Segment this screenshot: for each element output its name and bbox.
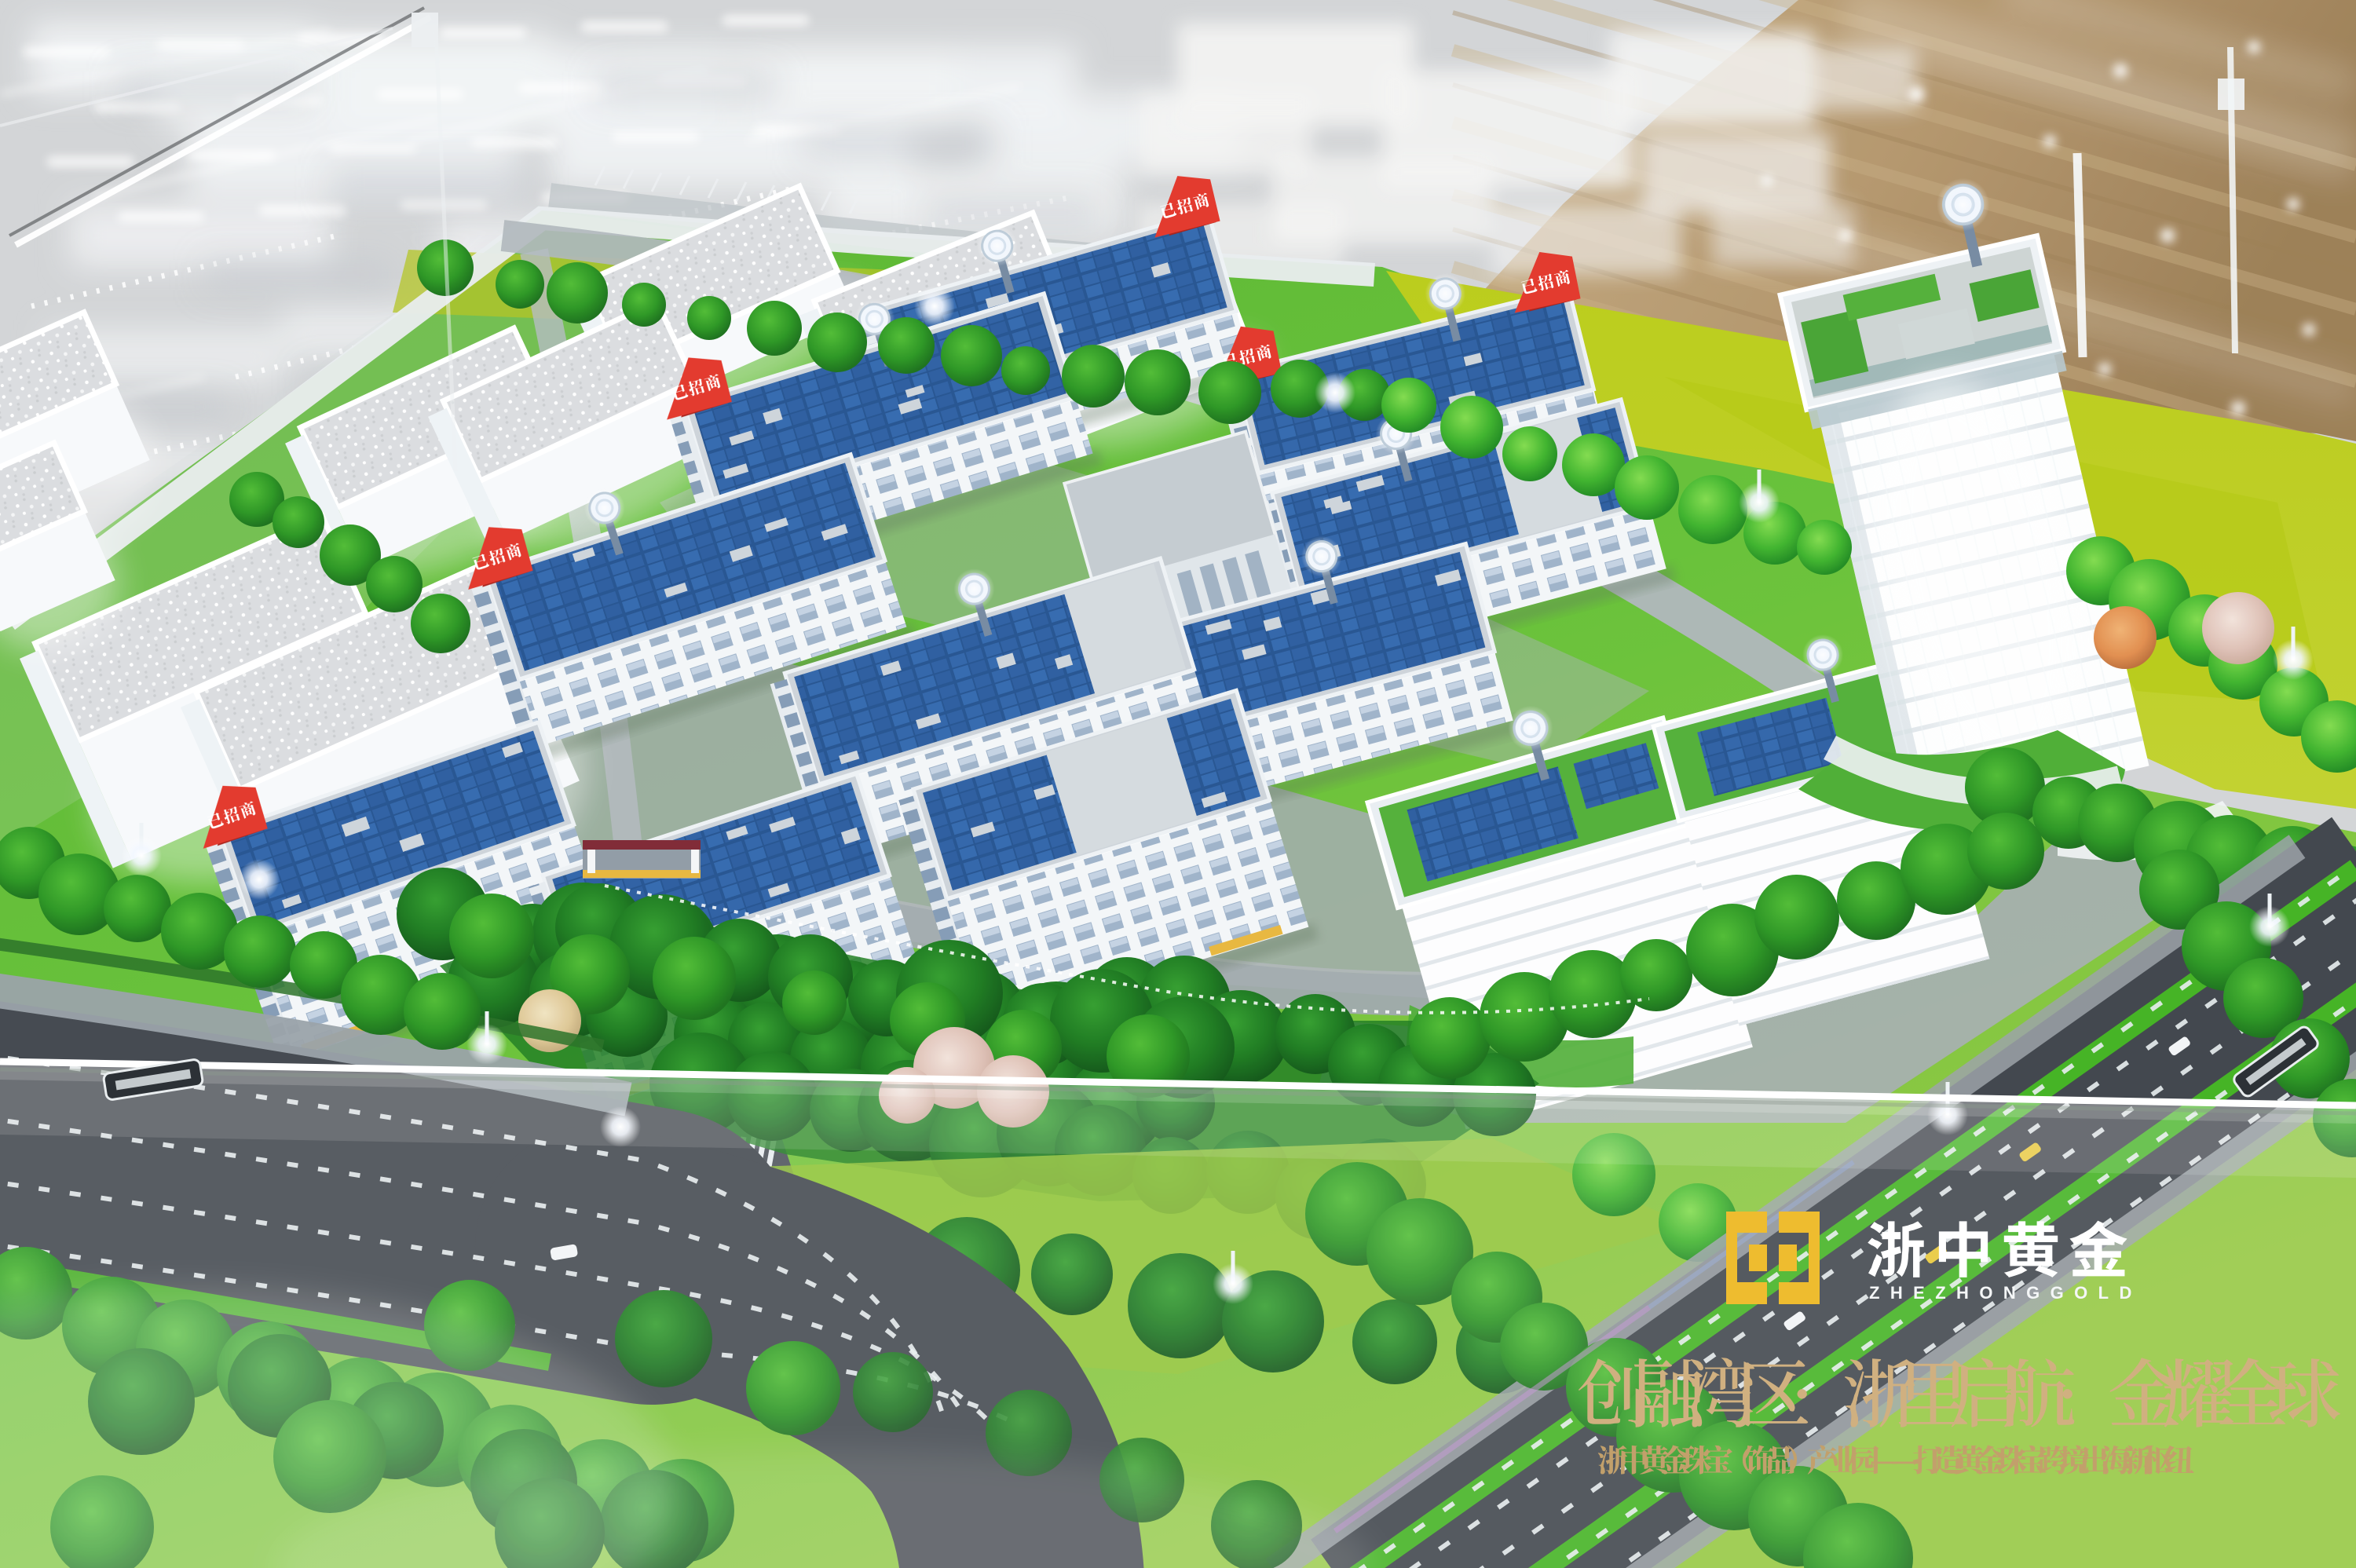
svg-text:ZHEZHONGGOLD: ZHEZHONGGOLD [1869, 1283, 2142, 1303]
